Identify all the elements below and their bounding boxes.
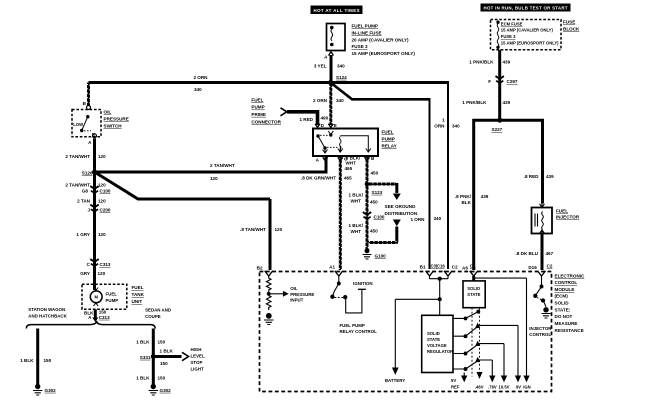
svg-text:465: 465	[344, 176, 352, 181]
svg-text:IGN: IGN	[523, 385, 530, 390]
svg-text:120: 120	[98, 271, 106, 276]
svg-text:S124: S124	[336, 75, 347, 80]
svg-text:LIGHT: LIGHT	[191, 367, 204, 372]
svg-text:C1: C1	[470, 264, 476, 269]
svg-text:340: 340	[452, 123, 460, 128]
svg-text:150: 150	[99, 310, 107, 315]
svg-text:150: 150	[160, 361, 168, 366]
svg-text:OIL: OIL	[290, 286, 298, 291]
svg-text:S227: S227	[492, 127, 503, 132]
svg-text:2 ORN: 2 ORN	[313, 98, 328, 103]
svg-text:.8 PNK/: .8 PNK/	[455, 194, 472, 199]
svg-text:.76V: .76V	[488, 385, 497, 390]
svg-text:IN-LINE FUSE: IN-LINE FUSE	[352, 30, 382, 35]
svg-text:C2: C2	[547, 264, 553, 269]
svg-text:439: 439	[503, 100, 511, 105]
svg-text:.8 DK GRN/WHT: .8 DK GRN/WHT	[301, 176, 336, 181]
svg-text:120: 120	[210, 176, 218, 181]
svg-text:G8: G8	[82, 189, 89, 194]
svg-text:PRESSURE: PRESSURE	[104, 117, 129, 122]
svg-text:BLK: BLK	[462, 200, 472, 205]
svg-text:RELAY CONTROL: RELAY CONTROL	[340, 329, 378, 334]
svg-text:450: 450	[370, 229, 378, 234]
svg-text:HOT IN RUN, BULB TEST OR START: HOT IN RUN, BULB TEST OR START	[484, 6, 568, 11]
svg-text:15 AMP (EUROSPORT ONLY): 15 AMP (EUROSPORT ONLY)	[501, 41, 559, 46]
svg-text:CONTROL: CONTROL	[555, 280, 578, 285]
svg-text:450: 450	[371, 170, 379, 175]
svg-text:J: J	[87, 207, 90, 212]
svg-text:TANK: TANK	[132, 292, 145, 297]
svg-text:340: 340	[337, 64, 345, 69]
svg-text:1 PNK/BLK: 1 PNK/BLK	[462, 100, 487, 105]
svg-text:120: 120	[98, 232, 106, 237]
svg-text:120: 120	[98, 198, 106, 203]
svg-text:SWITCH: SWITCH	[104, 124, 123, 129]
svg-text:HIGH: HIGH	[191, 347, 202, 352]
svg-text:15 AMP (EUROSPORT ONLY): 15 AMP (EUROSPORT ONLY)	[352, 51, 416, 56]
svg-text:D16: D16	[528, 265, 537, 270]
svg-text:F: F	[488, 79, 491, 84]
svg-text:.8 TAN/WHT: .8 TAN/WHT	[240, 227, 266, 232]
svg-text:VOLTAGE: VOLTAGE	[427, 343, 447, 348]
svg-text:S126: S126	[82, 170, 93, 175]
svg-text:C2: C2	[452, 265, 458, 270]
svg-text:A6: A6	[462, 265, 468, 270]
svg-text:PRESSURE: PRESSURE	[290, 292, 314, 297]
svg-text:C313: C313	[100, 262, 111, 267]
svg-text:15 AMP (CAVALIER ONLY): 15 AMP (CAVALIER ONLY)	[501, 28, 554, 33]
svg-text:DISTRIBUTION: DISTRIBUTION	[385, 211, 418, 216]
svg-text:SOLID: SOLID	[555, 301, 570, 306]
svg-text:2 TAN/WHT: 2 TAN/WHT	[210, 163, 235, 168]
svg-text:C100: C100	[374, 215, 385, 220]
svg-text:150: 150	[44, 358, 52, 363]
svg-text:LEVEL: LEVEL	[191, 354, 205, 359]
svg-text:DO NOT: DO NOT	[555, 314, 573, 319]
svg-text:439: 439	[503, 60, 511, 65]
svg-text:BLOCK: BLOCK	[563, 26, 580, 31]
svg-text:(ECM): (ECM)	[555, 294, 569, 299]
svg-text:C3|C16: C3|C16	[431, 264, 446, 269]
svg-text:120: 120	[98, 182, 106, 187]
svg-text:C200: C200	[100, 207, 111, 212]
svg-text:1 BLK: 1 BLK	[136, 376, 150, 381]
svg-text:5V: 5V	[451, 378, 456, 383]
svg-text:SEDAN AND: SEDAN AND	[145, 308, 171, 313]
svg-text:340: 340	[434, 216, 442, 221]
svg-text:FUSE 3: FUSE 3	[352, 44, 369, 49]
svg-text:FUSE 3: FUSE 3	[501, 34, 516, 39]
svg-text:SOLID: SOLID	[427, 331, 440, 336]
svg-text:INJECTOR: INJECTOR	[556, 214, 580, 219]
svg-text:UNIT: UNIT	[132, 299, 143, 304]
svg-text:FUEL: FUEL	[556, 208, 568, 213]
svg-text:PUMP: PUMP	[106, 298, 119, 303]
svg-text:2 TAN/WHT: 2 TAN/WHT	[65, 182, 90, 187]
svg-text:1 PNK/BLK: 1 PNK/BLK	[469, 60, 494, 65]
svg-text:GRY: GRY	[80, 271, 90, 276]
svg-text:2 TAN/WHT: 2 TAN/WHT	[65, 154, 90, 159]
svg-text:STATE: STATE	[427, 337, 440, 342]
svg-text:1 RED: 1 RED	[299, 117, 313, 122]
svg-text:.8 DK BLU: .8 DK BLU	[516, 251, 539, 256]
svg-text:G100: G100	[375, 254, 387, 259]
svg-text:150: 150	[158, 376, 166, 381]
svg-text:REGULATOR: REGULATOR	[427, 349, 453, 354]
svg-text:INJECTOR: INJECTOR	[529, 326, 552, 331]
svg-text:STATE:: STATE:	[555, 307, 571, 312]
svg-text:C297: C297	[507, 79, 518, 84]
svg-text:467: 467	[546, 251, 554, 256]
svg-text:OIL: OIL	[104, 110, 112, 115]
svg-text:2 ORN: 2 ORN	[193, 75, 208, 80]
svg-text:RELAY: RELAY	[382, 144, 397, 149]
svg-text:340: 340	[194, 87, 202, 92]
svg-text:CONNECTOR: CONNECTOR	[251, 119, 281, 124]
svg-text:20 AMP (CAVALIER ONLY): 20 AMP (CAVALIER ONLY)	[352, 37, 410, 42]
svg-text:CONTROL: CONTROL	[529, 332, 551, 337]
svg-text:FUEL PUMP: FUEL PUMP	[352, 24, 378, 29]
svg-text:FUEL: FUEL	[251, 98, 263, 103]
svg-text:FUEL: FUEL	[106, 291, 118, 296]
svg-text:LOW: LOW	[73, 122, 83, 127]
svg-text:150: 150	[158, 340, 166, 345]
svg-text:MODULE: MODULE	[555, 287, 575, 292]
svg-text:FUEL: FUEL	[132, 285, 144, 290]
svg-text:FUEL PUMP: FUEL PUMP	[340, 323, 365, 328]
svg-text:2 TAN: 2 TAN	[77, 198, 91, 203]
svg-text:E: E	[334, 123, 337, 128]
svg-text:SOLID: SOLID	[467, 286, 480, 291]
svg-text:C100: C100	[100, 189, 111, 194]
svg-text:STATE: STATE	[467, 292, 480, 297]
svg-text:B2: B2	[257, 265, 263, 270]
svg-text:B1: B1	[420, 265, 426, 270]
svg-text:PUMP: PUMP	[382, 137, 395, 142]
svg-text:INPUT: INPUT	[290, 298, 303, 303]
svg-text:IGNITION: IGNITION	[353, 281, 373, 286]
svg-text:STATION WAGON: STATION WAGON	[28, 307, 65, 312]
svg-text:G302: G302	[45, 388, 57, 393]
svg-text:450: 450	[370, 200, 378, 205]
svg-text:1 BLK: 1 BLK	[136, 340, 150, 345]
svg-text:340: 340	[336, 98, 344, 103]
svg-text:.46V: .46V	[475, 385, 484, 390]
svg-text:COUPE: COUPE	[145, 314, 161, 319]
svg-text:WHT: WHT	[351, 229, 362, 234]
svg-text:120: 120	[98, 154, 106, 159]
svg-text:A1: A1	[329, 265, 335, 270]
svg-text:M: M	[94, 295, 98, 300]
svg-text:.8 RED: .8 RED	[524, 174, 539, 179]
svg-text:FUEL: FUEL	[382, 130, 394, 135]
svg-text:STOP: STOP	[191, 360, 203, 365]
svg-text:FUSE: FUSE	[563, 20, 575, 25]
svg-text:ORN: ORN	[434, 123, 445, 128]
svg-text:3 YEL: 3 YEL	[314, 64, 327, 69]
svg-text:9V: 9V	[516, 385, 521, 390]
svg-text:1 ORN: 1 ORN	[410, 217, 425, 222]
svg-text:HOT AT ALL TIMES: HOT AT ALL TIMES	[314, 8, 360, 13]
svg-text:490: 490	[321, 116, 329, 121]
svg-text:1 BLK: 1 BLK	[160, 349, 174, 354]
svg-text:439: 439	[546, 174, 554, 179]
svg-text:1: 1	[442, 118, 445, 123]
svg-text:AND HATCHBACK: AND HATCHBACK	[28, 314, 67, 319]
svg-text:1 BLK/: 1 BLK/	[348, 223, 363, 228]
svg-text:PUMP: PUMP	[251, 105, 264, 110]
svg-text:ELECTRONIC: ELECTRONIC	[555, 273, 586, 278]
svg-text:S331: S331	[140, 355, 151, 360]
svg-text:C313: C313	[99, 315, 110, 320]
svg-text:ECM FUSE: ECM FUSE	[501, 22, 523, 27]
svg-text:MEASURE: MEASURE	[555, 321, 578, 326]
svg-text:465: 465	[345, 166, 353, 171]
svg-text:WHT: WHT	[351, 198, 362, 203]
svg-text:1 BLK: 1 BLK	[20, 358, 34, 363]
svg-text:S123: S123	[372, 190, 383, 195]
svg-text:PRIME: PRIME	[251, 112, 266, 117]
svg-text:BATTERY: BATTERY	[385, 378, 405, 383]
svg-text:439: 439	[481, 194, 489, 199]
svg-text:SEE GROUND: SEE GROUND	[385, 204, 417, 209]
svg-text:10.5V: 10.5V	[499, 385, 510, 390]
svg-text:120: 120	[275, 227, 283, 232]
svg-text:1 GRY: 1 GRY	[76, 232, 90, 237]
svg-text:REF: REF	[451, 385, 460, 390]
svg-text:G302: G302	[160, 388, 172, 393]
svg-text:RESISTANCE: RESISTANCE	[555, 328, 584, 333]
svg-text:1 BLK/: 1 BLK/	[348, 193, 363, 198]
